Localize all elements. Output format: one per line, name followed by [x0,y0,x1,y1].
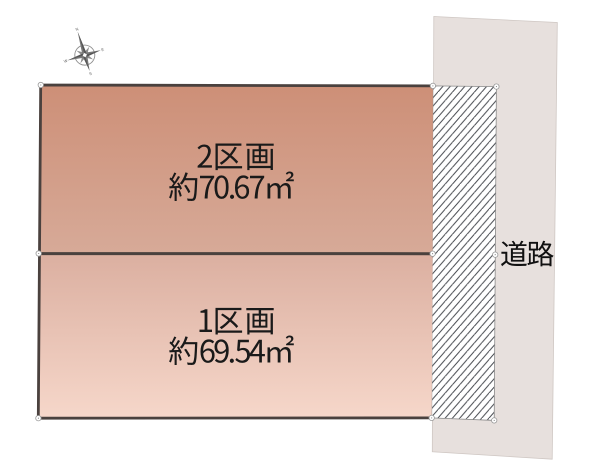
svg-text:S: S [88,71,92,77]
svg-text:E: E [101,47,105,53]
svg-text:N: N [75,26,79,32]
svg-text:W: W [63,58,68,64]
